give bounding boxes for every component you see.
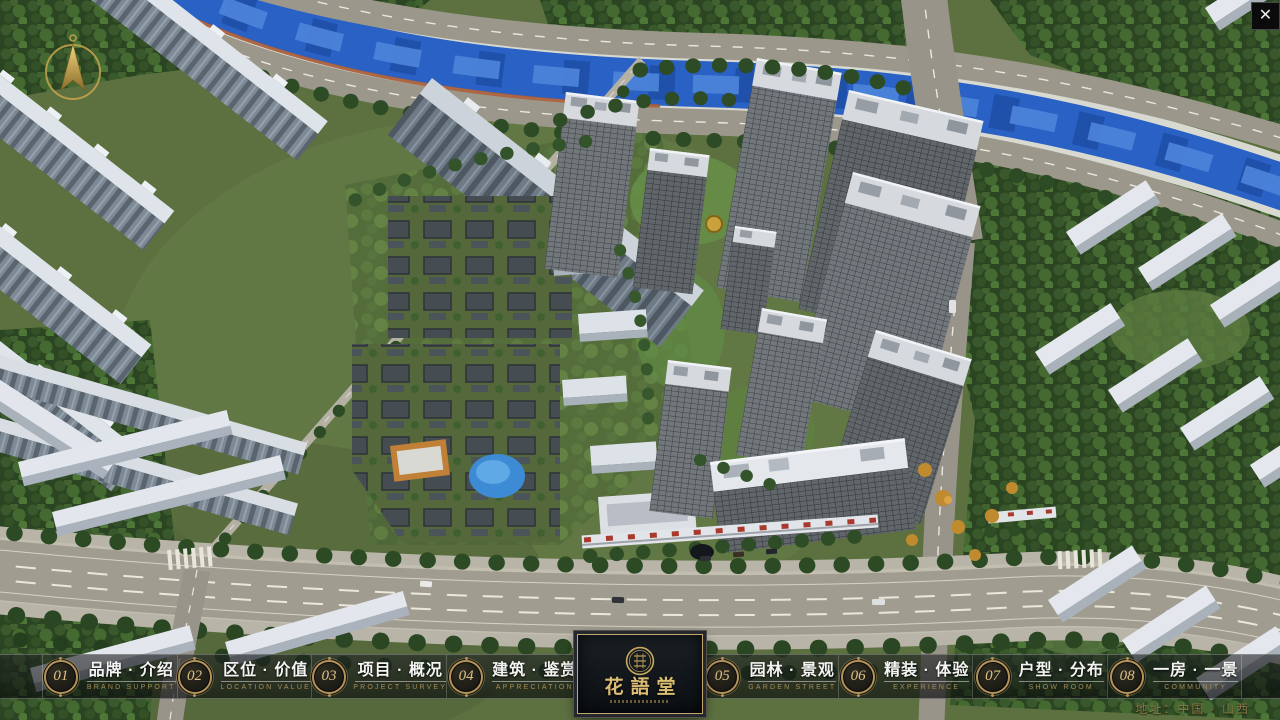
nav-number-badge: 04 xyxy=(449,660,483,694)
nav-number-badge: 05 xyxy=(705,660,739,694)
nav-number-badge: 03 xyxy=(312,660,346,694)
nav-item-sublabel: LOCATION VALUE xyxy=(221,684,311,691)
clubhouse xyxy=(390,439,450,482)
nav-item-divider xyxy=(355,681,446,682)
nav-left-group: 01 品牌 · 介绍 BRAND SUPPORT 02 区位 · 价值 LOCA… xyxy=(43,655,580,698)
nav-item-divider xyxy=(87,681,176,682)
nav-item-landscape[interactable]: 05 园林 · 景观 GARDEN STREET xyxy=(704,655,838,698)
close-button[interactable]: ✕ xyxy=(1251,2,1280,30)
nav-item-label: 建筑 · 鉴赏 xyxy=(492,662,577,680)
nav-item-divider xyxy=(1019,681,1104,682)
nav-item-label: 一房 · 一景 xyxy=(1153,662,1238,680)
nav-item-label: 项目 · 概况 xyxy=(358,662,443,680)
nav-item-label: 品牌 · 介绍 xyxy=(89,662,174,680)
nav-item-architecture[interactable]: 04 建筑 · 鉴赏 APPRECIATION xyxy=(446,655,581,698)
nav-item-sublabel: SHOW ROOM xyxy=(1029,684,1094,691)
brand-name: 花語堂 xyxy=(597,678,682,697)
nav-item-number: 05 xyxy=(715,668,730,685)
nav-number-badge: 01 xyxy=(44,660,78,694)
aerial-masterplan-view[interactable] xyxy=(0,0,1280,720)
nav-number-badge: 07 xyxy=(976,660,1010,694)
nav-item-number: 01 xyxy=(53,668,68,685)
nav-item-project-overview[interactable]: 03 项目 · 概况 PROJECT SURVEY xyxy=(311,655,446,698)
nav-item-sublabel: GARDEN STREET xyxy=(748,684,836,691)
gold-feature xyxy=(706,216,722,232)
nav-item-label: 区位 · 价值 xyxy=(223,662,308,680)
nav-number-badge: 08 xyxy=(1110,660,1144,694)
nav-tail-spacer xyxy=(1241,655,1280,698)
nav-item-number: 06 xyxy=(851,668,866,685)
nav-item-sublabel: COMMUNITY xyxy=(1164,684,1227,691)
close-icon: ✕ xyxy=(1259,8,1272,24)
nav-item-number: 03 xyxy=(322,668,337,685)
nav-item-number: 07 xyxy=(985,668,1000,685)
nav-item-location-value[interactable]: 02 区位 · 价值 LOCATION VALUE xyxy=(177,655,312,698)
nav-item-sublabel: EXPERIENCE xyxy=(893,684,960,691)
nav-number-badge: 02 xyxy=(178,660,212,694)
brand-seal-icon xyxy=(625,646,655,676)
nav-item-divider xyxy=(1153,681,1238,682)
nav-item-sublabel: PROJECT SURVEY xyxy=(353,684,447,691)
nav-item-sublabel: APPRECIATION xyxy=(496,684,574,691)
nav-item-divider xyxy=(884,681,969,682)
nav-item-number: 08 xyxy=(1120,668,1135,685)
nav-item-number: 02 xyxy=(187,668,202,685)
nav-lead-spacer xyxy=(0,655,43,698)
nav-item-divider xyxy=(221,681,311,682)
pool xyxy=(469,454,525,498)
nav-item-divider xyxy=(492,681,577,682)
brand-tagline-microtext xyxy=(610,700,670,703)
nav-item-label: 精装 · 体验 xyxy=(884,662,969,680)
nav-item-room-view[interactable]: 08 一房 · 一景 COMMUNITY xyxy=(1107,655,1242,698)
nav-number-badge: 06 xyxy=(841,660,875,694)
brand-plaque: 花語堂 xyxy=(577,634,703,714)
nav-item-sublabel: BRAND SUPPORT xyxy=(87,684,176,691)
nav-item-brand-intro[interactable]: 01 品牌 · 介绍 BRAND SUPPORT xyxy=(43,655,177,698)
project-address: 地址：中国 · 山西 xyxy=(1135,700,1250,717)
nav-item-label: 户型 · 分布 xyxy=(1019,662,1104,680)
nav-item-divider xyxy=(748,681,836,682)
nav-item-interior-experience[interactable]: 06 精装 · 体验 EXPERIENCE xyxy=(838,655,973,698)
nav-right-group: 05 园林 · 景观 GARDEN STREET 06 精装 · 体验 EXPE… xyxy=(704,655,1241,698)
nav-item-floorplan-distribution[interactable]: 07 户型 · 分布 SHOW ROOM xyxy=(972,655,1107,698)
nav-item-number: 04 xyxy=(459,668,474,685)
app-window: ✕ 01 品牌 · 介绍 BRAND SUPPORT 02 区位 · xyxy=(0,0,1280,720)
nav-item-label: 园林 · 景观 xyxy=(750,662,835,680)
